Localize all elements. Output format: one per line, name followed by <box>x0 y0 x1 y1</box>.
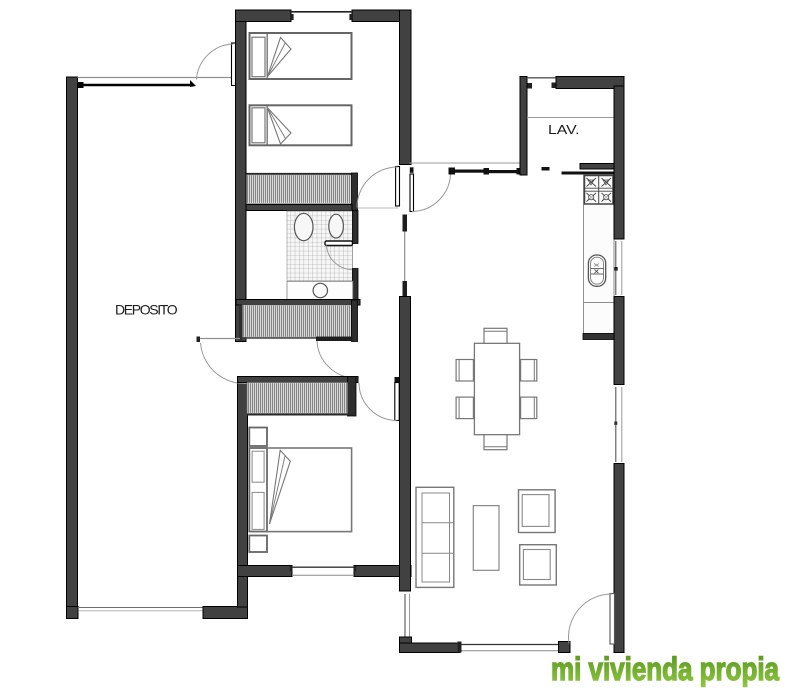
svg-text:LAV.: LAV. <box>548 122 580 137</box>
svg-text:mi vivienda propia: mi vivienda propia <box>551 651 779 687</box>
svg-text:DEPOSITO: DEPOSITO <box>115 302 178 318</box>
